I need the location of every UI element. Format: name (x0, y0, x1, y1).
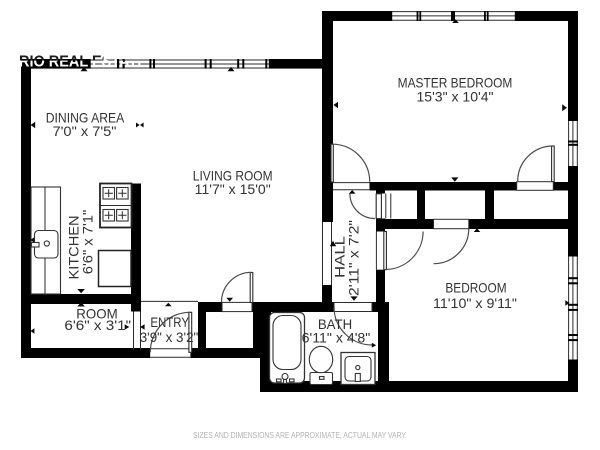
svg-text:6'11" x 4'8": 6'11" x 4'8" (302, 329, 371, 345)
svg-text:6'6" x 3'1": 6'6" x 3'1" (64, 317, 131, 333)
svg-text:7'0" x 7'5": 7'0" x 7'5" (53, 123, 117, 139)
svg-text:ENTRY: ENTRY (150, 314, 189, 330)
svg-text:SIZES AND DIMENSIONS ARE APPRO: SIZES AND DIMENSIONS ARE APPROXIMATE, AC… (193, 431, 407, 440)
svg-text:6'6" x 7'1": 6'6" x 7'1" (80, 210, 96, 275)
svg-text:2'11" x 7'2": 2'11" x 7'2" (346, 220, 362, 296)
svg-text:BEDROOM: BEDROOM (445, 279, 506, 295)
svg-text:3'9" x 3'2": 3'9" x 3'2" (140, 329, 199, 345)
svg-text:11'10" x 9'11": 11'10" x 9'11" (433, 295, 517, 311)
svg-text:11'7" x 15'0": 11'7" x 15'0" (195, 181, 271, 197)
svg-text:15'3" x 10'4": 15'3" x 10'4" (417, 89, 494, 105)
